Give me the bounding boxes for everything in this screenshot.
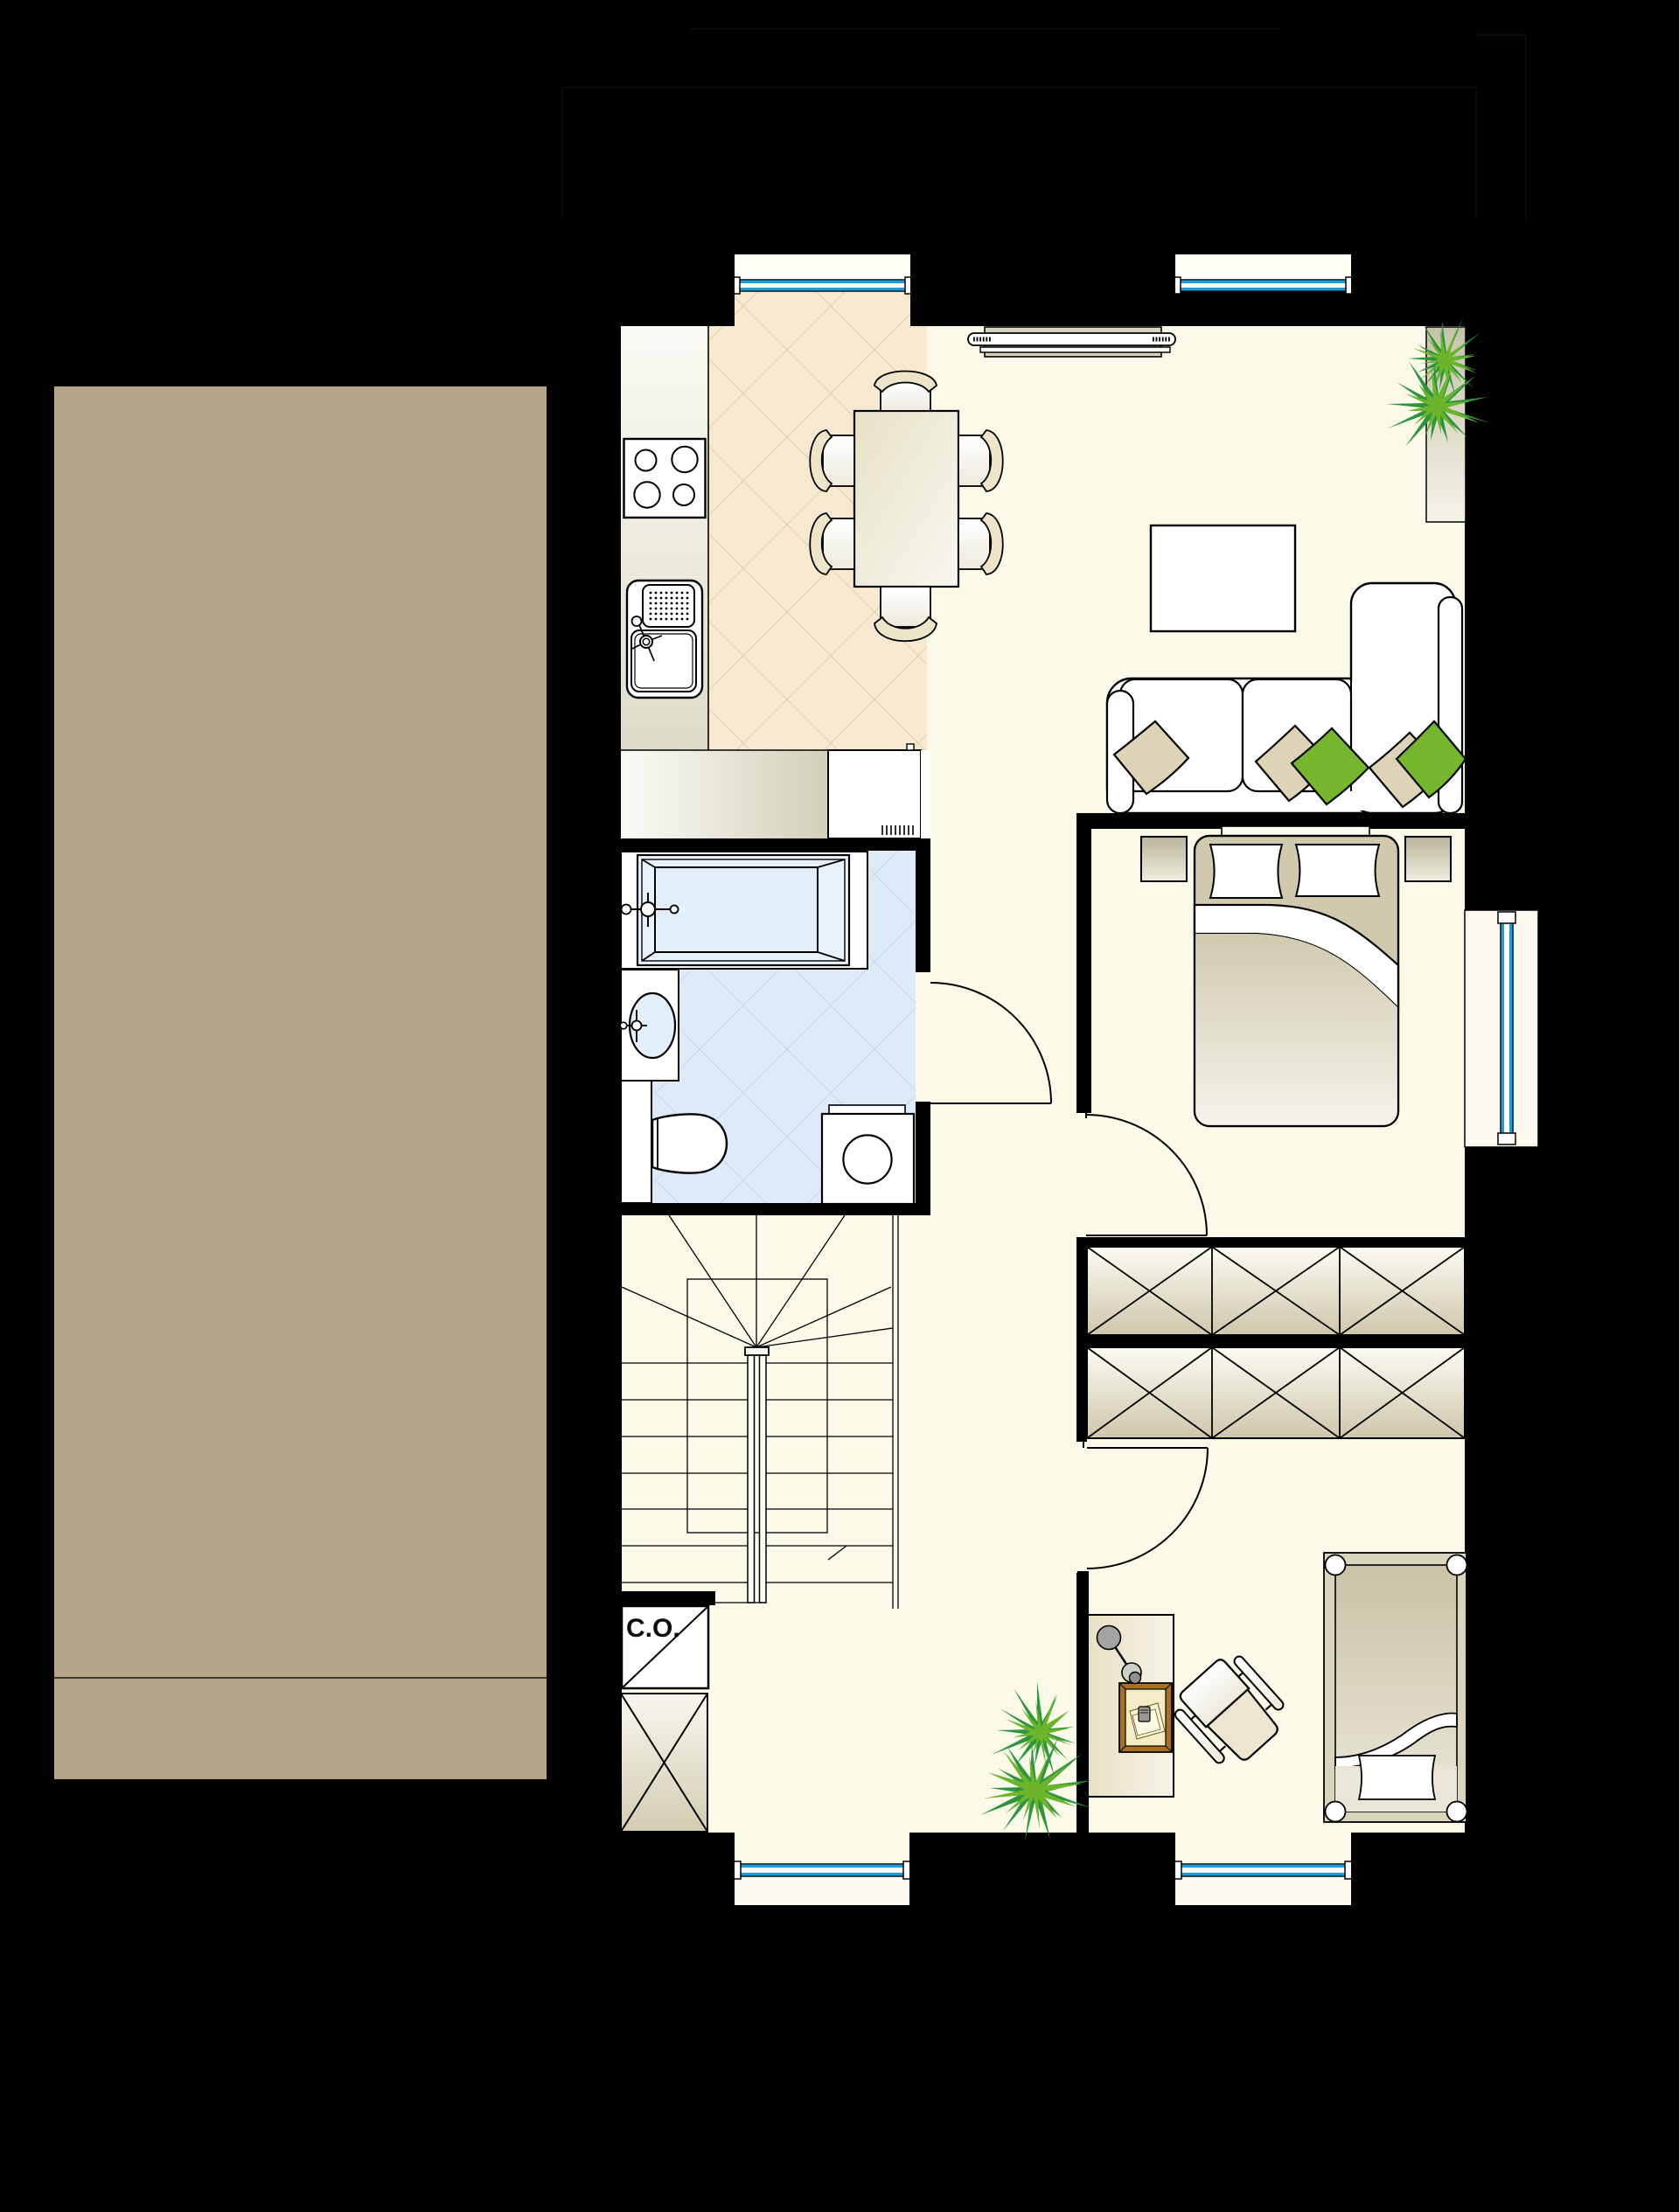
svg-text:C.O.: C.O. [626,1614,680,1643]
